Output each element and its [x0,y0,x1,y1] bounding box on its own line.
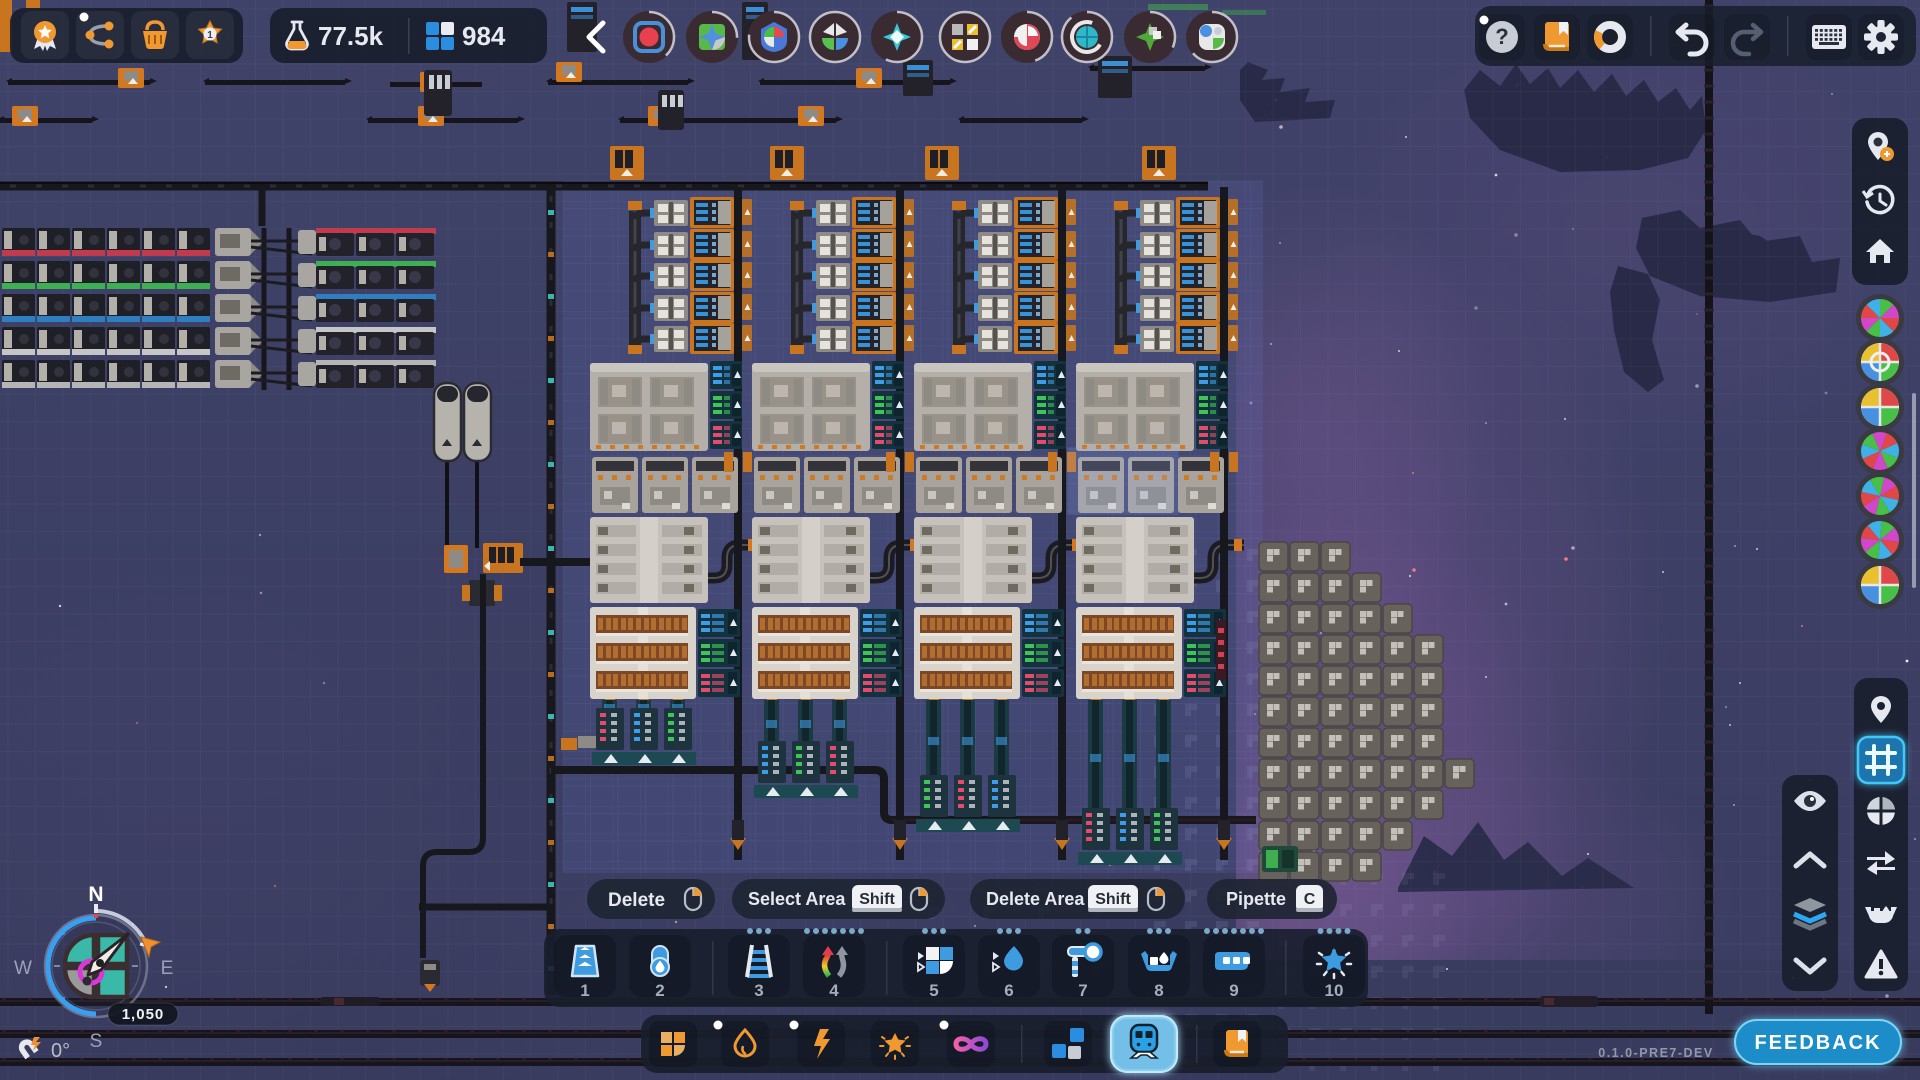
svg-text:S: S [90,1031,103,1052]
svg-text:2: 2 [655,981,664,1000]
svg-text:Shift: Shift [859,891,895,908]
svg-text:1,050: 1,050 [122,1006,165,1023]
svg-text:1: 1 [207,30,213,41]
svg-text:?: ? [1495,24,1508,49]
svg-text:Shift: Shift [1095,891,1131,908]
svg-text:10: 10 [1325,981,1344,1000]
svg-text:N: N [88,883,103,906]
svg-text:W: W [14,958,32,979]
svg-text:C: C [1304,891,1316,908]
svg-text:1: 1 [580,981,589,1000]
svg-text:5: 5 [929,981,938,1000]
svg-text:Delete Area: Delete Area [986,889,1085,909]
svg-text:984: 984 [462,21,506,51]
svg-text:Select Area: Select Area [748,889,846,909]
svg-text:Pipette: Pipette [1226,889,1286,909]
svg-text:E: E [161,958,174,979]
svg-text:FEEDBACK: FEEDBACK [1754,1032,1881,1054]
svg-text:3: 3 [754,981,763,1000]
svg-text:0.1.0-PRE7-DEV: 0.1.0-PRE7-DEV [1598,1046,1713,1060]
svg-text:0°: 0° [51,1040,70,1062]
svg-text:4: 4 [829,981,839,1000]
svg-text:Delete: Delete [608,890,665,911]
svg-text:9: 9 [1229,981,1238,1000]
svg-text:6: 6 [1004,981,1013,1000]
svg-text:8: 8 [1154,981,1163,1000]
svg-text:77.5k: 77.5k [318,21,384,51]
svg-text:7: 7 [1078,981,1087,1000]
